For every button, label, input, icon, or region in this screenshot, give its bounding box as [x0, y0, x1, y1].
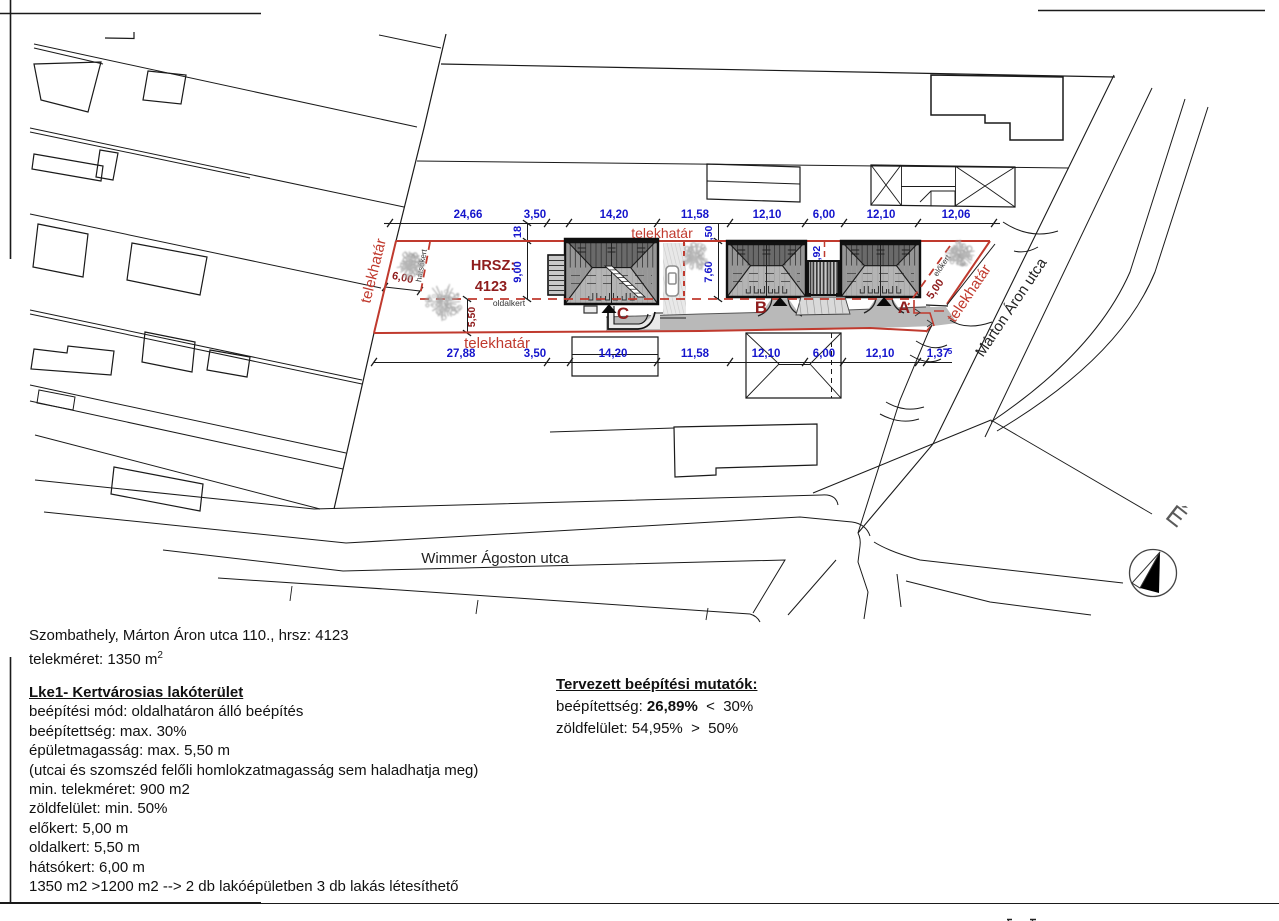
svg-text:telekhatár: telekhatár: [357, 237, 389, 305]
svg-text:12,10: 12,10: [866, 348, 895, 360]
svg-text:B: B: [755, 298, 767, 317]
svg-text:18: 18: [512, 226, 524, 238]
svg-text:1,37: 1,37: [927, 348, 949, 360]
svg-text:telekhatár: telekhatár: [631, 225, 693, 241]
svg-text:12,06: 12,06: [942, 209, 971, 221]
svg-text:5,00: 5,00: [924, 277, 946, 301]
svg-text:É: É: [1160, 499, 1192, 533]
svg-text:14,20: 14,20: [600, 209, 629, 221]
svg-text:HRSZ:: HRSZ:: [471, 258, 515, 274]
svg-text:,50: ,50: [703, 226, 715, 241]
svg-text:12,10: 12,10: [753, 209, 782, 221]
svg-text:4123: 4123: [475, 279, 507, 295]
svg-text:12,10: 12,10: [752, 348, 781, 360]
svg-text:24,66: 24,66: [454, 209, 483, 221]
svg-text:5,50: 5,50: [466, 307, 478, 328]
svg-text:11,58: 11,58: [681, 209, 710, 221]
svg-text:11,58: 11,58: [681, 348, 710, 360]
svg-text:C: C: [617, 304, 629, 323]
svg-text:3,50: 3,50: [524, 209, 546, 221]
svg-text:oldalkert: oldalkert: [493, 298, 526, 308]
svg-text:12,10: 12,10: [867, 209, 896, 221]
svg-text:A: A: [898, 298, 910, 317]
svg-text:6,00: 6,00: [813, 348, 835, 360]
svg-text:Wimmer Ágoston utca: Wimmer Ágoston utca: [421, 550, 569, 567]
svg-text:6,00: 6,00: [813, 209, 835, 221]
svg-text:14,20: 14,20: [599, 348, 628, 360]
svg-text:5: 5: [948, 347, 953, 356]
svg-text:telekhatár: telekhatár: [464, 335, 530, 352]
